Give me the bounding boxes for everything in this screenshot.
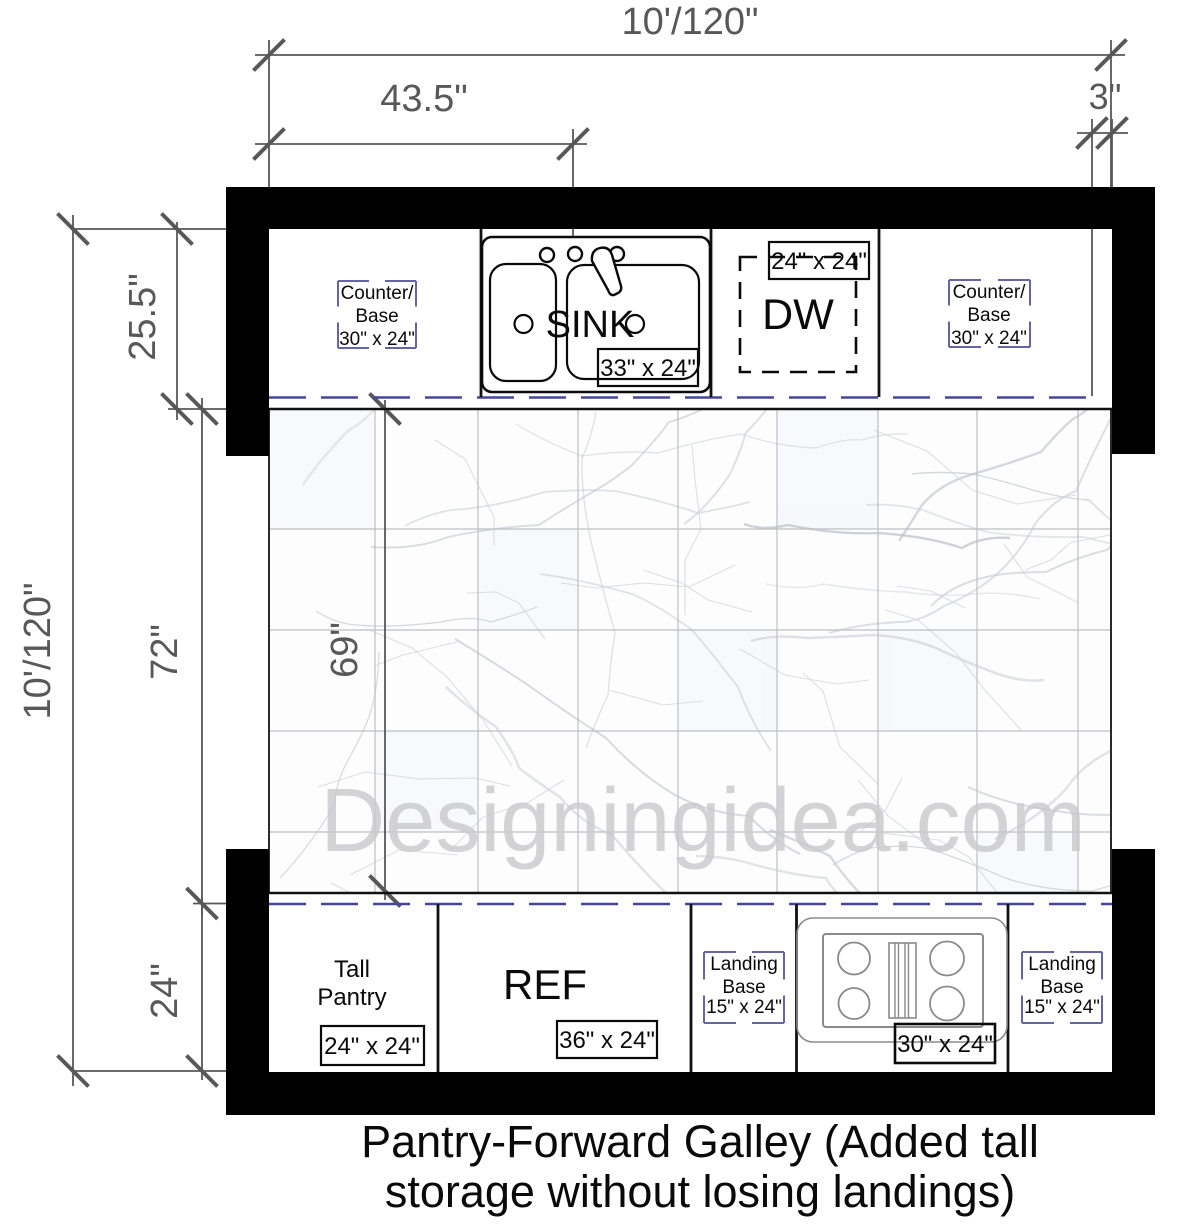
svg-text:Base: Base xyxy=(722,977,765,998)
svg-text:Pantry: Pantry xyxy=(317,984,386,1011)
svg-text:3": 3" xyxy=(1089,76,1122,117)
svg-text:Tall: Tall xyxy=(334,956,370,983)
svg-text:Counter/: Counter/ xyxy=(341,283,415,304)
svg-text:Counter/: Counter/ xyxy=(953,282,1027,303)
svg-text:15" x 24": 15" x 24" xyxy=(1024,997,1100,1018)
svg-text:storage without losing landing: storage without losing landings) xyxy=(385,1166,1015,1217)
svg-text:15" x 24": 15" x 24" xyxy=(706,997,782,1018)
svg-text:10'/120": 10'/120" xyxy=(17,583,59,720)
svg-text:36" x 24": 36" x 24" xyxy=(559,1027,655,1054)
svg-text:25.5": 25.5" xyxy=(122,273,164,360)
svg-text:24" x 24": 24" x 24" xyxy=(324,1033,420,1060)
svg-text:72": 72" xyxy=(144,624,186,680)
svg-text:30" x 24": 30" x 24" xyxy=(951,328,1027,349)
svg-text:REF: REF xyxy=(503,961,587,1008)
svg-text:30" x 24": 30" x 24" xyxy=(339,329,415,350)
svg-text:10'/120": 10'/120" xyxy=(622,1,759,43)
svg-text:Landing: Landing xyxy=(710,954,778,975)
svg-text:24": 24" xyxy=(144,963,186,1019)
svg-text:24" x 24": 24" x 24" xyxy=(771,248,867,275)
svg-text:Landing: Landing xyxy=(1028,954,1096,975)
svg-text:Base: Base xyxy=(355,306,398,327)
svg-text:Designingidea.com: Designingidea.com xyxy=(320,771,1085,871)
svg-text:Base: Base xyxy=(1040,977,1083,998)
svg-text:43.5": 43.5" xyxy=(380,78,467,120)
svg-text:30" x 24": 30" x 24" xyxy=(897,1031,993,1058)
svg-text:Pantry-Forward Galley (Added t: Pantry-Forward Galley (Added tall xyxy=(361,1116,1039,1167)
svg-text:DW: DW xyxy=(762,291,834,339)
svg-text:SINK: SINK xyxy=(546,304,635,346)
svg-text:33" x 24": 33" x 24" xyxy=(600,355,696,382)
svg-text:69": 69" xyxy=(324,622,366,678)
svg-text:Base: Base xyxy=(967,305,1010,326)
